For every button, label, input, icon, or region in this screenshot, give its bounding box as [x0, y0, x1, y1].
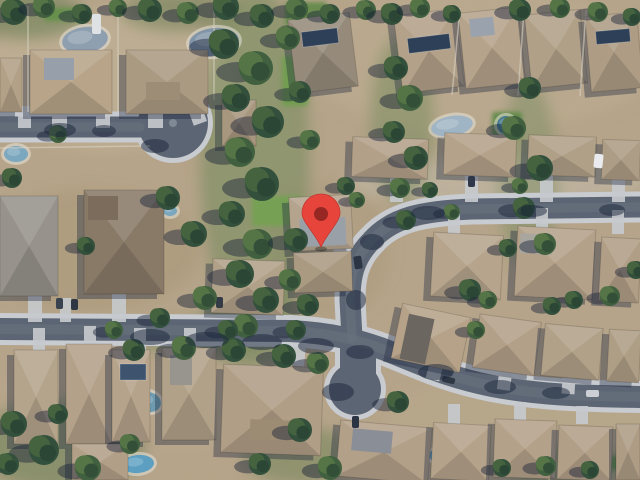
car — [586, 390, 599, 397]
tree-canopy — [280, 352, 293, 365]
roof-section — [88, 196, 118, 220]
tree-canopy — [257, 178, 276, 197]
cast-shadow — [599, 204, 625, 216]
house — [599, 329, 640, 388]
satellite-map[interactable] — [0, 0, 640, 480]
tree-canopy — [146, 6, 159, 19]
car — [352, 416, 359, 428]
tree-canopy — [185, 9, 197, 21]
cast-shadow — [346, 290, 366, 310]
tree-canopy — [473, 327, 483, 337]
tree-canopy — [587, 467, 597, 477]
tree-canopy — [327, 11, 338, 22]
tree-canopy — [79, 11, 90, 22]
tree-canopy — [557, 5, 568, 16]
tree-canopy — [262, 295, 276, 309]
tree-canopy — [190, 229, 204, 243]
tree-canopy — [326, 464, 339, 477]
tree-canopy — [5, 460, 17, 472]
pin-dot — [314, 207, 328, 221]
tree-canopy — [293, 327, 304, 338]
house — [59, 344, 112, 449]
tree-canopy — [263, 116, 281, 134]
driveway — [33, 328, 45, 352]
tree-canopy — [406, 93, 420, 107]
tree-canopy — [9, 175, 20, 186]
tree-canopy — [536, 163, 550, 177]
tree-canopy — [305, 301, 317, 313]
tree-canopy — [595, 9, 606, 20]
roof-section — [351, 428, 393, 453]
cast-shadow — [141, 139, 169, 153]
tree-canopy — [392, 64, 405, 77]
car — [216, 297, 223, 308]
tree-canopy — [403, 217, 414, 228]
road-detail-layer — [169, 119, 177, 127]
car — [593, 154, 603, 169]
tree-canopy — [428, 187, 437, 196]
tree-canopy — [40, 445, 57, 462]
house — [436, 133, 517, 183]
car — [71, 299, 78, 310]
tree-canopy — [10, 419, 24, 433]
tree-canopy — [449, 11, 459, 21]
tree-canopy — [549, 303, 559, 313]
tree-canopy — [517, 6, 529, 18]
tree-canopy — [254, 239, 271, 256]
cast-shadow — [346, 345, 374, 359]
tree-canopy — [230, 346, 243, 359]
tree-canopy — [292, 236, 305, 249]
tree-canopy — [543, 463, 554, 474]
cast-shadow — [484, 380, 516, 394]
cast-shadow — [298, 338, 334, 354]
cast-shadow — [517, 205, 547, 217]
tree-canopy — [251, 62, 270, 81]
tree-canopy — [111, 327, 121, 337]
car — [56, 298, 63, 309]
cast-shadow — [411, 206, 445, 220]
tree-canopy — [236, 269, 251, 284]
cast-shadow — [542, 387, 570, 399]
house — [609, 424, 640, 480]
tree-canopy — [417, 5, 428, 16]
tree-canopy — [412, 154, 425, 167]
tree-canopy — [297, 88, 309, 100]
tree-canopy — [294, 5, 306, 17]
tree-canopy — [499, 465, 509, 475]
tree-canopy — [505, 245, 515, 255]
solar-panel — [120, 364, 146, 380]
driveway — [514, 402, 526, 420]
tree-canopy — [131, 346, 143, 358]
cast-shadow — [44, 123, 76, 137]
tree-canopy — [527, 84, 539, 96]
cast-shadow — [418, 364, 454, 380]
roof-section — [469, 17, 495, 37]
car — [468, 176, 475, 187]
tree-canopy — [257, 460, 269, 472]
tree-canopy — [315, 359, 327, 371]
tree-canopy — [157, 315, 168, 326]
tree-canopy — [296, 426, 309, 439]
cul-de-sac-center — [169, 119, 177, 127]
tree-canopy — [55, 411, 66, 422]
tree-canopy — [571, 297, 581, 307]
tree-canopy — [222, 2, 236, 16]
tree-canopy — [164, 194, 177, 207]
car — [92, 14, 101, 34]
pool — [1, 143, 31, 165]
cast-shadow — [130, 329, 170, 345]
tree-canopy — [201, 294, 214, 307]
tree-canopy — [542, 240, 554, 252]
satellite-map-svg — [0, 0, 640, 480]
pool-highlight — [7, 148, 20, 156]
tree-canopy — [258, 12, 271, 25]
tree-canopy — [467, 286, 479, 298]
tree-canopy — [236, 147, 253, 164]
tree-canopy — [395, 398, 407, 410]
tree-canopy — [607, 293, 618, 304]
house — [0, 196, 58, 301]
cast-shadow — [360, 234, 384, 250]
tree-canopy — [180, 344, 193, 357]
tree-canopy — [510, 124, 523, 137]
tree-canopy — [450, 209, 459, 218]
tree-canopy — [228, 209, 242, 223]
tree-canopy — [485, 297, 495, 307]
tree-canopy — [232, 93, 247, 108]
tree-canopy — [629, 14, 639, 24]
tree-canopy — [287, 276, 299, 288]
cast-shadow — [322, 383, 354, 401]
house — [0, 58, 22, 117]
tree-canopy — [307, 137, 318, 148]
tree-canopy — [518, 183, 527, 192]
cast-shadow — [242, 334, 282, 350]
tree-canopy — [391, 128, 403, 140]
house — [533, 323, 603, 385]
driveway — [576, 406, 588, 424]
tree-canopy — [83, 243, 93, 253]
roof-section — [146, 82, 180, 100]
tree-canopy — [343, 183, 353, 193]
tree-canopy — [397, 185, 408, 196]
tree-canopy — [242, 322, 255, 335]
tree-canopy — [84, 463, 98, 477]
tree-canopy — [41, 3, 53, 15]
tree-canopy — [220, 39, 237, 56]
roof-section — [44, 58, 74, 80]
house — [213, 364, 323, 461]
cast-shadow — [185, 332, 229, 348]
tree-canopy — [225, 327, 236, 338]
tree-canopy — [127, 441, 138, 452]
tree — [0, 411, 27, 437]
tree-canopy — [284, 34, 297, 47]
driveway — [448, 404, 460, 424]
cast-shadow — [92, 125, 116, 137]
tree-canopy — [355, 197, 364, 206]
